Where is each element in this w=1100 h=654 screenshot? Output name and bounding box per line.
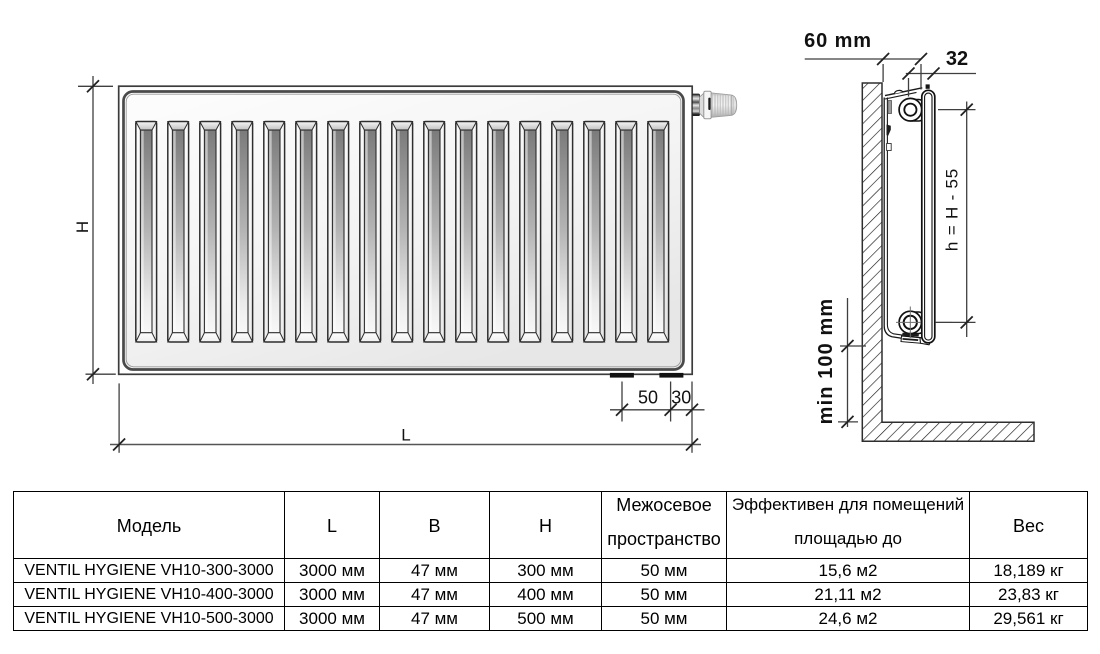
svg-text:H: H	[73, 221, 92, 233]
svg-text:L: L	[401, 426, 410, 445]
svg-text:32: 32	[946, 48, 968, 70]
svg-text:60 mm: 60 mm	[804, 30, 872, 52]
svg-text:min 100 mm: min 100 mm	[815, 298, 837, 425]
svg-text:h = H - 55: h = H - 55	[943, 168, 962, 251]
svg-text:30: 30	[671, 388, 691, 408]
svg-text:50: 50	[638, 388, 658, 408]
